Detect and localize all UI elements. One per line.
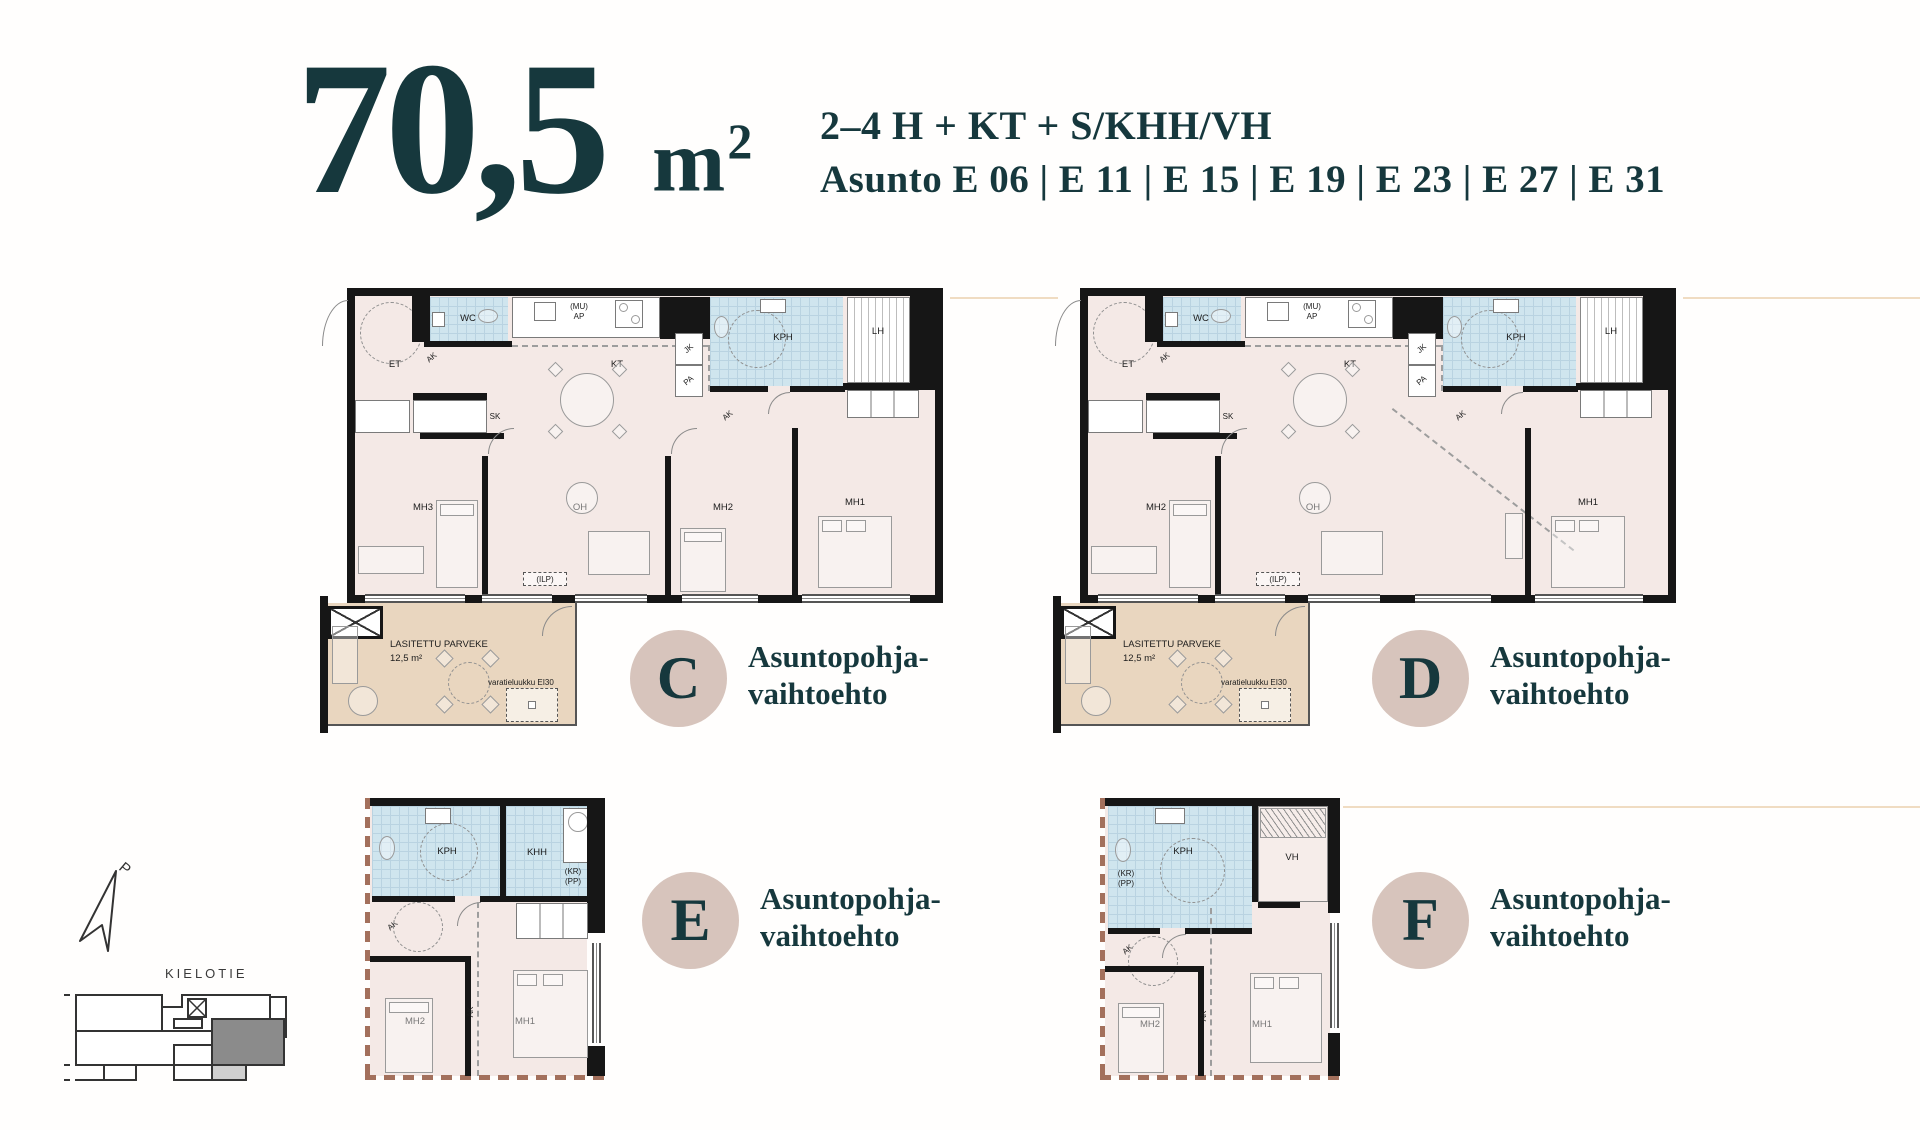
north-arrow-icon: P [72, 855, 142, 955]
north-label: P [115, 859, 134, 878]
label-kr: (KR) [565, 868, 581, 876]
hall-closet-sk [413, 400, 487, 433]
work-desk [1505, 513, 1523, 559]
wc-sink [432, 312, 445, 327]
label-ak-2: AK [1200, 1011, 1208, 1022]
kph-toilet [714, 316, 729, 338]
plan-cut-edge [365, 798, 370, 1080]
page: 70,5 m2 2–4 H + KT + S/KHH/VH Asunto E 0… [0, 0, 1920, 1130]
variant-badge-d: D [1372, 630, 1469, 727]
dining-table [560, 373, 614, 427]
room-label-mh1: MH1 [845, 498, 865, 508]
room-label-mh2: MH2 [713, 503, 733, 513]
area-unit-m: m [652, 114, 725, 211]
mh2-desk [1091, 546, 1157, 574]
balcony-area: 12,5 m² [390, 654, 422, 664]
street-label: KIELOTIE [165, 966, 248, 981]
room-label-mh2: MH2 [1146, 503, 1166, 513]
room-label-lh: LH [1605, 327, 1617, 337]
kph-sink [760, 299, 786, 313]
label-kr: (KR) [1118, 870, 1134, 878]
area-unit: m2 [652, 116, 752, 207]
variant-label-e: Asuntopohja- vaihtoehto [760, 880, 941, 954]
balcony-title: LASITETTU PARVEKE [1123, 640, 1221, 650]
balcony-lounge [332, 626, 358, 684]
mh1-closet [516, 903, 588, 939]
mh1-closet [847, 390, 919, 418]
label-sk: SK [490, 413, 501, 421]
balcony-table [448, 662, 490, 704]
kitchen-sink [534, 302, 556, 321]
label-ap: AP [574, 313, 585, 321]
floor-plan-e: KPH KHH (KR) (PP) AK AK MH1 MH2 [365, 798, 610, 1080]
variant-label-f: Asuntopohja- vaihtoehto [1490, 880, 1671, 954]
floor-plan-f: KPH (KR) (PP) VH AK AK MH1 MH2 [1100, 798, 1340, 1080]
room-lh [847, 297, 910, 383]
plan-cut-edge [1100, 798, 1105, 1080]
escape-hatch-label: varatieluukku EI30 [1221, 679, 1287, 688]
hall-closet [355, 400, 410, 433]
label-ap: AP [1307, 313, 1318, 321]
side-table [566, 482, 598, 514]
room-label-mh1: MH1 [1578, 498, 1598, 508]
balcony-area: 12,5 m² [1123, 654, 1155, 664]
label-mu: (MU) [570, 303, 588, 311]
room-label-et: ET [1122, 360, 1134, 370]
room-label-et: ET [389, 360, 401, 370]
room-label-wc: WC [460, 314, 476, 324]
mh3-desk [358, 546, 424, 574]
variant-label-d: Asuntopohja- vaihtoehto [1490, 638, 1671, 712]
vh-wardrobe [1260, 808, 1326, 838]
plan-cut-edge [1100, 1075, 1340, 1080]
sofa [588, 531, 650, 575]
label-mu: (MU) [1303, 303, 1321, 311]
entry-door-arc [322, 300, 348, 346]
plan-cut-edge [365, 1075, 610, 1080]
wc-toilet [478, 309, 498, 323]
room-label-kph: KPH [773, 333, 793, 343]
label-ak-2: AK [467, 1007, 475, 1018]
area-value: 70,5 [296, 34, 605, 224]
variant-badge-e: E [642, 872, 739, 969]
site-plan [62, 985, 312, 1095]
variant-label-c: Asuntopohja- vaihtoehto [748, 638, 929, 712]
label-sk: SK [1223, 413, 1234, 421]
balcony-title: LASITETTU PARVEKE [390, 640, 488, 650]
room-label-kph: KPH [1506, 333, 1526, 343]
room-label-vh: VH [1285, 853, 1298, 863]
room-label-kph: KPH [437, 847, 457, 857]
ilp-upper: (ILP) [523, 572, 567, 586]
escape-hatch-label: varatieluukku EI30 [488, 679, 554, 688]
room-label-lh: LH [872, 327, 884, 337]
variant-badge-c: C [630, 630, 727, 727]
variant-badge-f: F [1372, 872, 1469, 969]
room-label-wc: WC [1193, 314, 1209, 324]
room-label-khh: KHH [527, 848, 547, 858]
highlighted-apartment [212, 1019, 284, 1065]
apartment-list: Asunto E 06 | E 11 | E 15 | E 19 | E 23 … [820, 160, 1665, 199]
sofa [1321, 531, 1383, 575]
balcony-pot [348, 686, 378, 716]
label-pp: (PP) [565, 878, 581, 886]
room-label-kph: KPH [1173, 847, 1193, 857]
room-label-mh3: MH3 [413, 503, 433, 513]
label-pp: (PP) [1118, 880, 1134, 888]
ilp-upper: (ILP) [1256, 572, 1300, 586]
room-lh [1580, 297, 1643, 383]
room-composition: 2–4 H + KT + S/KHH/VH [820, 106, 1272, 146]
area-unit-exponent: 2 [727, 113, 752, 169]
highlighted-balcony [212, 1065, 246, 1080]
